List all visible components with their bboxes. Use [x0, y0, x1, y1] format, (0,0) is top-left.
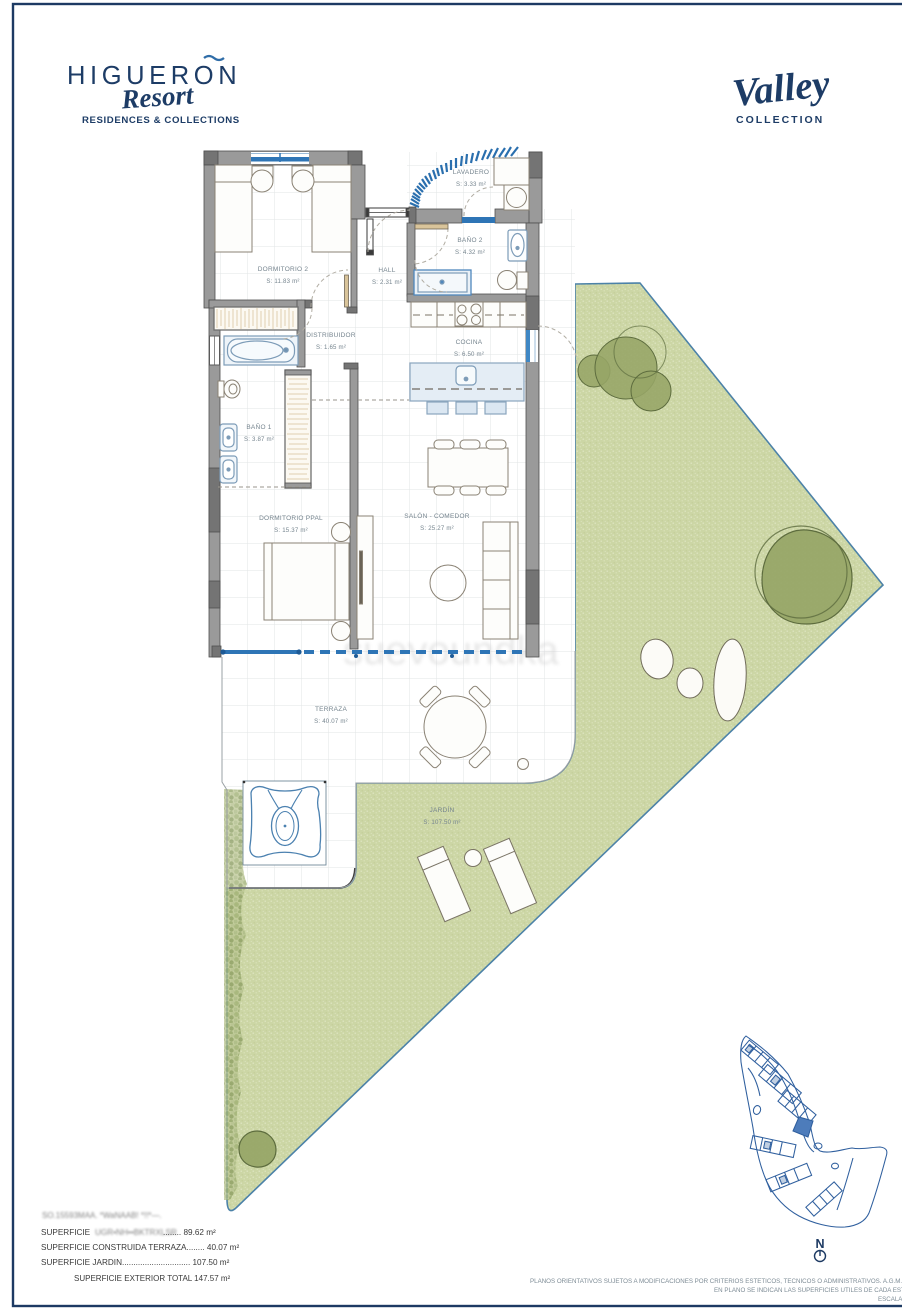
svg-text:........ 89.62 m²: ........ 89.62 m² [163, 1228, 216, 1237]
svg-text:SO.15593MAA. *WaNAAB! *!!*—.: SO.15593MAA. *WaNAAB! *!!*—. [42, 1211, 162, 1220]
svg-text:DORMITORIO 2: DORMITORIO 2 [258, 266, 309, 273]
svg-text:ESCALA 1:: ESCALA 1: [878, 1296, 902, 1303]
svg-text:Valley: Valley [730, 62, 832, 115]
svg-text:TERRAZA: TERRAZA [315, 706, 348, 713]
svg-text:SUPERFICIE EXTERIOR TOTAL 147.: SUPERFICIE EXTERIOR TOTAL 147.57 m² [74, 1274, 231, 1283]
svg-text:JARDÍN: JARDÍN [430, 805, 455, 814]
svg-text:S: 40.07 m²: S: 40.07 m² [314, 718, 348, 725]
svg-text:S: 15.37 m²: S: 15.37 m² [274, 527, 308, 534]
svg-text:BAÑO 1: BAÑO 1 [246, 422, 271, 431]
svg-text:S: 107.50 m²: S: 107.50 m² [423, 819, 460, 826]
svg-text:S: 4.32 m²: S: 4.32 m² [455, 249, 485, 256]
svg-text:S: 3.33 m²: S: 3.33 m² [456, 181, 486, 188]
svg-text:SUPERFICIE JARDIN.............: SUPERFICIE JARDIN.......................… [41, 1258, 230, 1267]
svg-text:S: 3.87 m²: S: 3.87 m² [244, 436, 274, 443]
svg-text:SUPERFICIE CONSTRUIDA TERRAZA.: SUPERFICIE CONSTRUIDA TERRAZA........ 40… [41, 1243, 239, 1252]
svg-text:DISTRIBUIDOR: DISTRIBUIDOR [306, 332, 356, 339]
svg-text:HALL: HALL [378, 267, 395, 274]
svg-text:N: N [815, 1237, 824, 1251]
svg-text:RESIDENCES & COLLECTIONS: RESIDENCES & COLLECTIONS [82, 115, 240, 126]
svg-text:S: 2.31 m²: S: 2.31 m² [372, 279, 402, 286]
svg-text:DORMITORIO PPAL: DORMITORIO PPAL [259, 515, 323, 522]
svg-text:EN PLANO SE INDICAN LAS SUPERF: EN PLANO SE INDICAN LAS SUPERFICIES UTIL… [714, 1287, 902, 1294]
svg-text:Resort: Resort [119, 79, 195, 114]
svg-text:S: 1.65 m²: S: 1.65 m² [316, 344, 346, 351]
svg-text:LAVADERO: LAVADERO [453, 169, 489, 176]
svg-text:SUPERFICIE: SUPERFICIE [41, 1228, 91, 1237]
svg-text:COCINA: COCINA [456, 339, 483, 346]
svg-text:PLANOS ORIENTATIVOS SUJETOS A: PLANOS ORIENTATIVOS SUJETOS A MODIFICACI… [530, 1278, 902, 1285]
svg-text:COLLECTION: COLLECTION [736, 114, 824, 126]
svg-text:S: 25.27 m²: S: 25.27 m² [420, 525, 454, 532]
svg-text:SALÓN - COMEDOR: SALÓN - COMEDOR [404, 511, 470, 520]
svg-text:BAÑO 2: BAÑO 2 [457, 235, 482, 244]
svg-text:S: 6.50 m²: S: 6.50 m² [454, 351, 484, 358]
svg-text:S: 11.83 m²: S: 11.83 m² [266, 278, 299, 285]
